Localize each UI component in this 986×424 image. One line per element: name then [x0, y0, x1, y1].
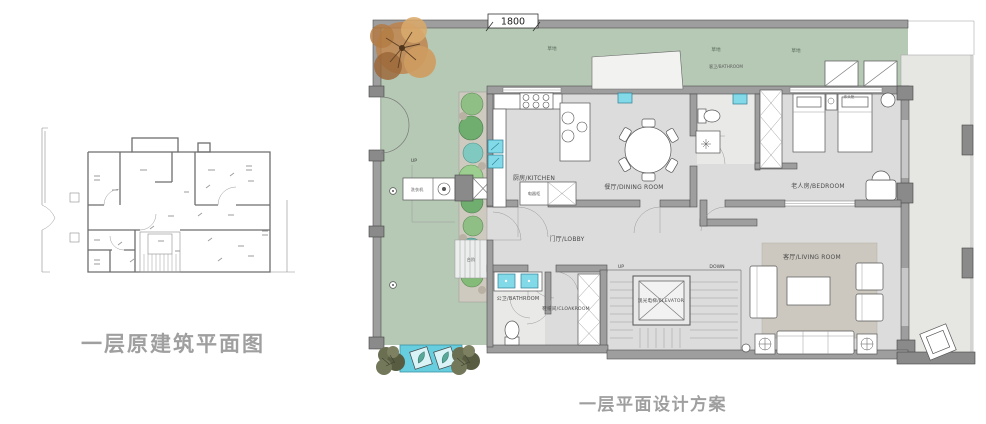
- appliance-cabinet: 电器柜: [520, 182, 576, 205]
- washer-counter: 洗衣机: [403, 175, 493, 201]
- entry-steps: 台阶: [455, 240, 487, 278]
- plans-svg: 一层原建筑平面图 UP 草地 草地 草地: [0, 0, 986, 424]
- stairs-old: [140, 232, 180, 272]
- living-room-label: 客厅/LIVING ROOM: [783, 253, 841, 261]
- elevator-label: 观光电梯/ELEVATOR: [638, 297, 685, 304]
- side-table-1-icon: [755, 334, 775, 354]
- original-plan: 一层原建筑平面图: [42, 128, 295, 356]
- grass-label-2: 草地: [711, 46, 721, 53]
- bay-window: [592, 51, 683, 89]
- dimension-1800: 1800: [501, 17, 525, 28]
- wardrobe-icon: [760, 90, 782, 168]
- chaise-icon: [750, 266, 777, 318]
- design-plan-title: 一层平面设计方案: [579, 394, 727, 415]
- coffee-table-icon: [787, 277, 830, 305]
- public-toilet-icon: [505, 321, 519, 345]
- design-plan: UP 草地 草地 草地 洗衣机: [369, 14, 975, 415]
- dining-sink-icon: [618, 93, 632, 103]
- toilet-icon: [698, 109, 720, 123]
- cloakroom-label: 鞋帽间/CLOAKROOM: [542, 305, 590, 312]
- bedside-label: 床头柜: [844, 94, 855, 99]
- shower-icon: [696, 131, 720, 153]
- interior-walls: [88, 152, 270, 272]
- stairs-down-label: DOWN: [709, 264, 724, 270]
- original-plan-title: 一层原建筑平面图: [81, 332, 265, 356]
- stairs-up-label: UP: [618, 264, 624, 270]
- tree-icon: [370, 17, 436, 80]
- elevator: 观光电梯/ELEVATOR: [633, 276, 690, 325]
- steps-label: 台阶: [467, 256, 476, 263]
- sofa-icon: [777, 331, 854, 354]
- armchair-1-icon: [856, 263, 883, 290]
- guest-bath-sink-icon: [733, 94, 747, 104]
- guest-bath-floor: [697, 94, 755, 164]
- terrace-pier-2: [962, 248, 973, 278]
- site-boundary: [42, 128, 295, 272]
- terrace-pier-1: [962, 125, 973, 155]
- stool-icon: [881, 93, 895, 107]
- shrub-right: [451, 345, 480, 375]
- nightstand-icon: [826, 94, 837, 110]
- public-bath-label: 公卫/BATHROOM: [497, 296, 540, 302]
- floor-lamp-icon: [742, 344, 750, 352]
- side-table-2-icon: [857, 334, 877, 354]
- dining-label: 餐厅/DINING ROOM: [604, 183, 663, 191]
- bed-2: [838, 94, 872, 152]
- grass-label-3: 草地: [791, 47, 801, 54]
- guest-bath-label: 客卫/BATHROOM: [709, 63, 743, 70]
- armchair-2-icon: [856, 294, 883, 321]
- bedroom-label: 老人房/BEDROOM: [791, 182, 845, 190]
- living-room: 客厅/LIVING ROOM: [742, 243, 883, 354]
- kitchen-label: 厨房/KITCHEN: [513, 174, 555, 182]
- column-markers: [70, 193, 79, 242]
- lobby-label: 门厅/LOBBY: [549, 235, 584, 243]
- appliance-cabinet-label: 电器柜: [528, 190, 541, 197]
- grass-label-1: 草地: [547, 45, 557, 52]
- washing-machine-label: 洗衣机: [411, 186, 424, 193]
- bed-1: [793, 94, 825, 152]
- stove-icon: [520, 93, 553, 109]
- floorplan-sheet: 一层原建筑平面图 UP 草地 草地 草地: [0, 0, 986, 424]
- kitchen-island: [560, 103, 590, 161]
- garden-up-label: UP: [411, 158, 417, 164]
